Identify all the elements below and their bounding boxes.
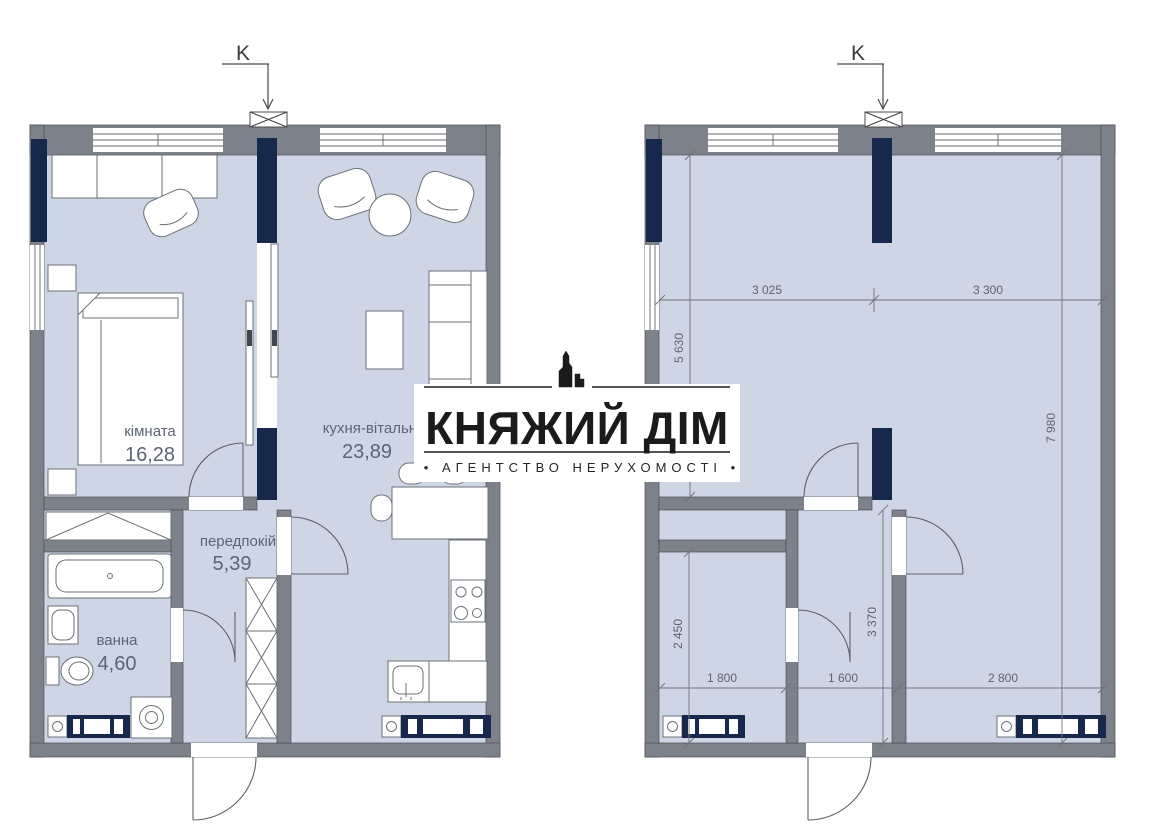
- hall-cabinet: [46, 512, 171, 540]
- dining-table: [392, 487, 488, 539]
- dim-height-living: 7 980: [1044, 413, 1058, 443]
- room-label-bedroom: кімната: [124, 423, 176, 440]
- logo-title: КНЯЖИЙ ДІМ: [425, 402, 729, 454]
- window-unit: [663, 715, 745, 738]
- dim-width-bedroom: 3 025: [752, 283, 782, 297]
- coffee-table: [366, 311, 403, 369]
- left-vent-shaft: [250, 112, 287, 127]
- floor-plan-sheet: K кімната 16,28 кухня-вітальня 23,89 пер…: [0, 0, 1150, 831]
- room-area-hallway: 5,39: [213, 553, 252, 575]
- logo-subtitle: • АГЕНТСТВО НЕРУХОМОСТІ •: [424, 460, 740, 475]
- dim-height-hallway: 3 370: [865, 607, 879, 637]
- right-vent-shaft: [865, 112, 902, 127]
- room-label-kitchen-living: кухня-вітальня: [323, 420, 425, 437]
- room-area-bathroom: 4,60: [98, 653, 137, 675]
- dining-chair: [371, 495, 392, 521]
- logo-icon-backdrop: [545, 347, 603, 389]
- dim-width-hallway: 1 600: [828, 671, 858, 685]
- round-table: [369, 194, 411, 236]
- dim-height-bedroom: 5 630: [672, 333, 686, 363]
- dim-height-bathroom: 2 450: [671, 619, 685, 649]
- dim-width-window-zone: 2 800: [988, 671, 1018, 685]
- right-k-marker: K: [837, 42, 888, 109]
- room-area-bedroom: 16,28: [125, 444, 175, 466]
- left-k-marker: K: [222, 42, 273, 109]
- hall-wardrobe: [246, 578, 277, 738]
- dim-width-living: 3 300: [973, 283, 1003, 297]
- wardrobe: [52, 155, 217, 198]
- bathtub: [48, 554, 171, 598]
- nightstand: [48, 469, 76, 495]
- stove: [451, 580, 485, 622]
- dim-width-bathroom: 1 800: [707, 671, 737, 685]
- washing-machine: [131, 697, 172, 738]
- k-label: K: [236, 42, 250, 65]
- nightstand: [48, 265, 76, 291]
- k-label: K: [851, 42, 865, 65]
- floor-plan-drawing: K кімната 16,28 кухня-вітальня 23,89 пер…: [0, 0, 1150, 831]
- room-area-kitchen-living: 23,89: [342, 441, 392, 463]
- room-label-hallway: передпокій: [200, 533, 276, 550]
- window-unit: [997, 715, 1106, 738]
- window-unit: [382, 715, 491, 738]
- kitchen-sink: [388, 661, 429, 702]
- window-unit: [48, 715, 130, 738]
- toilet: [46, 657, 93, 685]
- washbasin: [48, 606, 78, 644]
- room-label-bathroom: ванна: [96, 632, 138, 649]
